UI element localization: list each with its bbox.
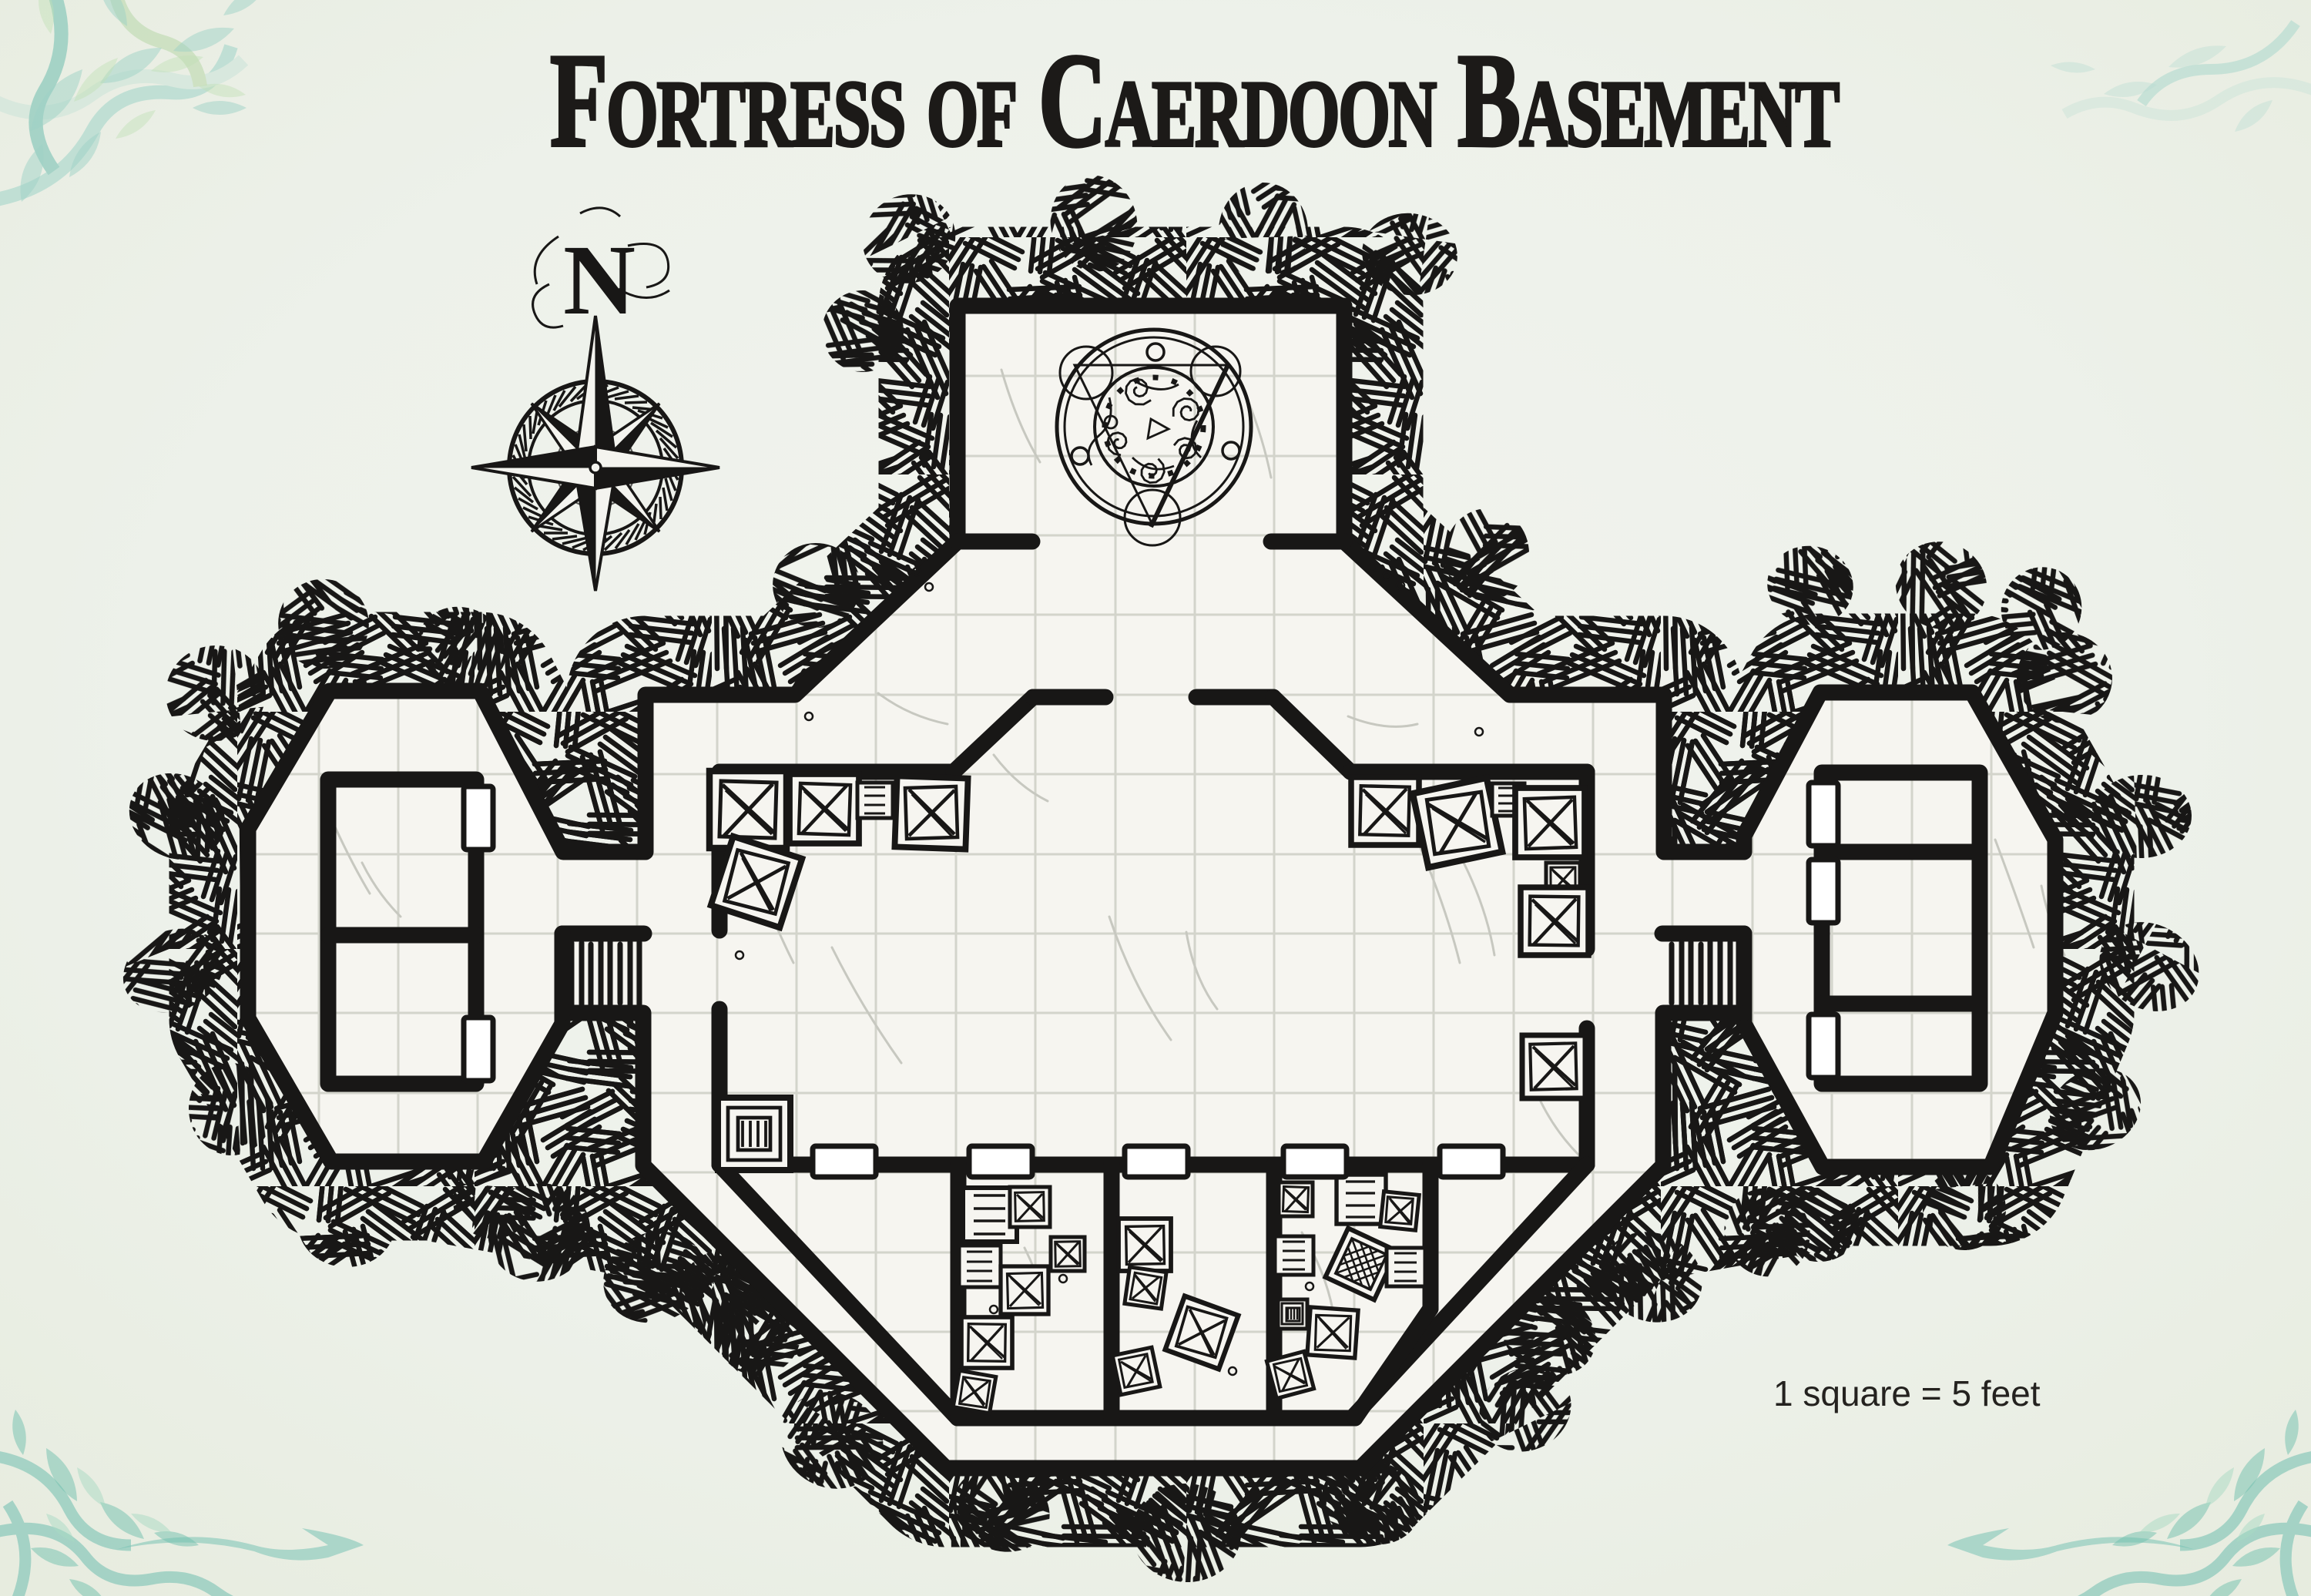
svg-text:N: N (563, 225, 636, 336)
